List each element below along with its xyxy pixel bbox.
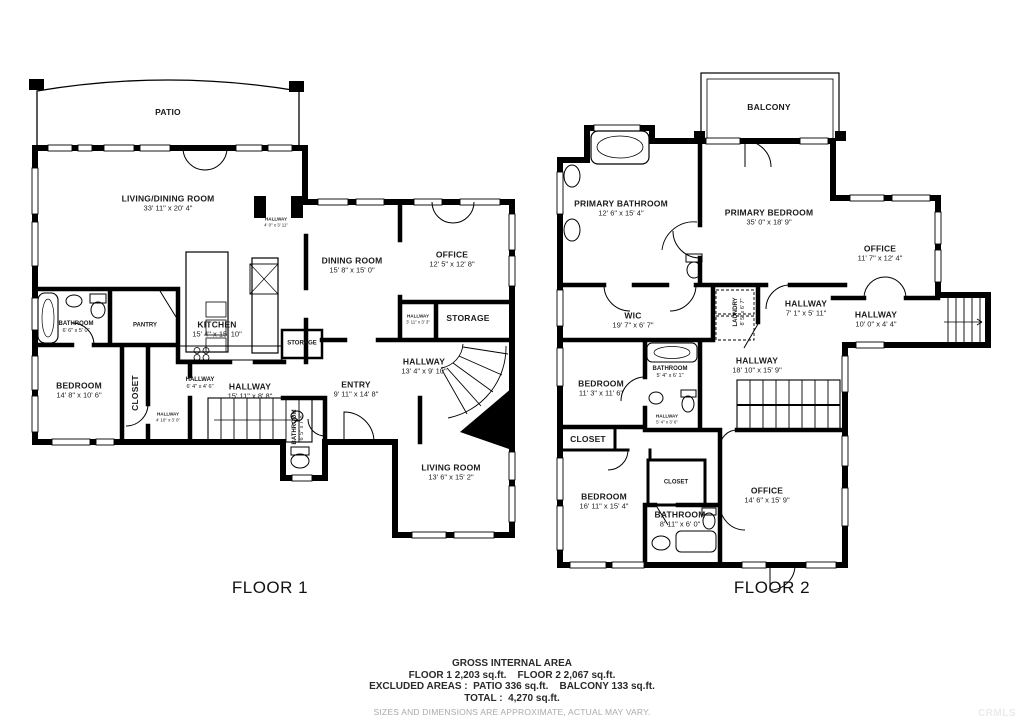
room-label-office: OFFICE14' 6" x 15' 9" [744, 485, 789, 504]
room-name: LIVING/DINING ROOM [122, 193, 215, 203]
room-label-bathroom: BATHROOM5' 4" x 6' 1" [653, 366, 688, 380]
excluded-areas-line: EXCLUDED AREAS : PATIO 336 sq.ft. BALCON… [0, 681, 1024, 693]
room-name: OFFICE [429, 249, 474, 259]
room-name: OFFICE [858, 243, 903, 253]
room-label-bedroom: BEDROOM11' 3" x 11' 6" [578, 378, 624, 397]
room-dims: 4' 10" x 3' 0" [156, 417, 180, 422]
room-labels-layer: PATIOLIVING/DINING ROOM33' 11" x 20' 4"H… [0, 0, 1024, 724]
room-name: BATHROOM [653, 366, 688, 373]
room-dims: 15' 8" x 15' 0" [322, 266, 383, 275]
room-dims: 14' 6" x 15' 9" [744, 496, 789, 505]
total-area-line: TOTAL : 4,270 sq.ft. [0, 693, 1024, 705]
room-name: BALCONY [747, 102, 790, 112]
room-dims: 6' 6" x 5' 0" [59, 328, 94, 335]
room-name: HALLWAY [785, 298, 827, 308]
room-dims: 33' 11" x 20' 4" [122, 204, 215, 213]
room-dims: 6' 4" x 4' 6" [186, 384, 215, 391]
room-dims: 9' 11" x 14' 8" [334, 390, 379, 399]
room-label-storage: STORAGE [446, 313, 489, 323]
room-label-hallway: HALLWAY4' 10" x 3' 0" [156, 412, 180, 423]
floor-areas-line: FLOOR 1 2,203 sq.ft. FLOOR 2 2,067 sq.ft… [0, 670, 1024, 682]
room-label-hallway: HALLWAY5' 4" x 3' 6" [656, 414, 678, 425]
room-dims: 10' 0" x 4' 4" [855, 320, 897, 329]
room-name: PRIMARY BEDROOM [725, 207, 813, 217]
room-name: WIC [612, 310, 653, 320]
room-dims: 5' 4" x 3' 6" [656, 419, 678, 424]
room-label-pantry: PANTRY [133, 322, 157, 329]
room-label-hallway: HALLWAY13' 4" x 9' 10" [401, 356, 446, 375]
room-dims: 13' 6" x 15' 2" [421, 473, 480, 482]
room-name: CLOSET [570, 434, 606, 444]
room-dims: 15' 4" x 15' 10" [192, 330, 241, 339]
room-dims: 18' 10" x 15' 9" [732, 366, 781, 375]
room-name: BEDROOM [56, 380, 102, 390]
room-name: PANTRY [133, 322, 157, 329]
room-label-patio: PATIO [155, 107, 181, 117]
room-label-wic: WIC19' 7" x 6' 7" [612, 310, 653, 329]
room-name: HALLWAY [406, 314, 430, 320]
room-label-hallway: HALLWAY6' 4" x 4' 6" [186, 377, 215, 391]
room-label-hallway: HALLWAY18' 10" x 15' 9" [732, 355, 781, 374]
room-dims: 13' 4" x 9' 10" [401, 367, 446, 376]
room-label-primary-bedroom: PRIMARY BEDROOM35' 0" x 18' 9" [725, 207, 813, 226]
room-label-bathroom: BATHROOM6' 6" x 5' 0" [59, 321, 94, 335]
room-label-living-dining-room: LIVING/DINING ROOM33' 11" x 20' 4" [122, 193, 215, 212]
room-name: HALLWAY [401, 356, 446, 366]
room-dims: 16' 11" x 15' 4" [580, 502, 629, 511]
room-label-closet: CLOSET [570, 434, 606, 444]
room-label-hallway: HALLWAY7' 1" x 5' 11" [785, 298, 827, 317]
room-dims: 7' 1" x 5' 11" [785, 309, 827, 318]
room-name: CLOSET [664, 479, 688, 486]
room-label-hallway: HALLWAY3' 11" x 3' 3" [406, 314, 430, 325]
room-label-office: OFFICE11' 7" x 12' 4" [858, 243, 903, 262]
room-name: HALLWAY [228, 381, 273, 391]
room-dims: 5' 4" x 6' 1" [653, 373, 688, 380]
room-label-closet: CLOSET [664, 479, 688, 486]
room-label-bedroom: BEDROOM16' 11" x 15' 4" [580, 491, 629, 510]
room-label-hallway: HALLWAY10' 0" x 4' 4" [855, 309, 897, 328]
room-dims: 6' 5" x 7' 8" [299, 410, 306, 445]
room-label-bathroom: BATHROOM6' 5" x 7' 8" [292, 410, 306, 445]
room-name: BATHROOM [292, 410, 299, 445]
floor-2-label: FLOOR 2 [734, 578, 810, 598]
room-dims: 14' 8" x 10' 6" [56, 391, 102, 400]
room-name: HALLWAY [732, 355, 781, 365]
room-name: PATIO [155, 107, 181, 117]
room-dims: 12' 6" x 15' 4" [574, 209, 668, 218]
room-name: LAUNDRY [733, 297, 740, 326]
room-dims: 11' 3" x 11' 6" [578, 389, 624, 398]
room-label-living-room: LIVING ROOM13' 6" x 15' 2" [421, 462, 480, 481]
room-name: OFFICE [744, 485, 789, 495]
floor-1-label: FLOOR 1 [232, 578, 308, 598]
disclaimer-text: SIZES AND DIMENSIONS ARE APPROXIMATE, AC… [0, 707, 1024, 717]
area-summary: GROSS INTERNAL AREA FLOOR 1 2,203 sq.ft.… [0, 658, 1024, 717]
room-label-closet: CLOSET [130, 375, 140, 411]
room-name: STORAGE [446, 313, 489, 323]
room-name: DINING ROOM [322, 255, 383, 265]
room-name: PRIMARY BATHROOM [574, 198, 668, 208]
room-label-office: OFFICE12' 5" x 12' 8" [429, 249, 474, 268]
room-label-primary-bathroom: PRIMARY BATHROOM12' 6" x 15' 4" [574, 198, 668, 217]
room-dims: 8' 11" x 6' 0" [654, 520, 705, 529]
room-dims: 11' 7" x 12' 4" [858, 254, 903, 263]
room-label-bathroom: BATHROOM8' 11" x 6' 0" [654, 509, 705, 528]
room-name: ENTRY [334, 379, 379, 389]
room-label-laundry: LAUNDRY8' 5" x 6' 7" [733, 297, 747, 326]
room-label-hallway: HALLWAY15' 11" x 8' 8" [228, 381, 273, 400]
room-name: BATHROOM [59, 321, 94, 328]
room-dims: 35' 0" x 18' 9" [725, 218, 813, 227]
room-name: HALLWAY [186, 377, 215, 384]
room-name: HALLWAY [156, 412, 180, 418]
room-name: BEDROOM [578, 378, 624, 388]
crmls-watermark: CRMLS [978, 708, 1016, 719]
room-dims: 12' 5" x 12' 8" [429, 260, 474, 269]
room-label-kitchen: KITCHEN15' 4" x 15' 10" [192, 319, 241, 338]
room-label-entry: ENTRY9' 11" x 14' 8" [334, 379, 379, 398]
room-name: HALLWAY [264, 217, 288, 223]
room-name: CLOSET [130, 375, 140, 411]
floorplan-canvas: PATIOLIVING/DINING ROOM33' 11" x 20' 4"H… [0, 0, 1024, 724]
room-dims: 3' 11" x 3' 3" [406, 319, 430, 324]
room-label-bedroom: BEDROOM14' 8" x 10' 6" [56, 380, 102, 399]
room-label-dining-room: DINING ROOM15' 8" x 15' 0" [322, 255, 383, 274]
room-dims: 19' 7" x 6' 7" [612, 321, 653, 330]
gross-internal-area-title: GROSS INTERNAL AREA [0, 658, 1024, 670]
room-name: BEDROOM [580, 491, 629, 501]
room-name: STORAGE [287, 340, 317, 347]
room-dims: 15' 11" x 8' 8" [228, 392, 273, 401]
room-name: LIVING ROOM [421, 462, 480, 472]
room-label-storage: STORAGE [287, 340, 317, 347]
room-name: BATHROOM [654, 509, 705, 519]
room-name: HALLWAY [656, 414, 678, 420]
room-name: KITCHEN [192, 319, 241, 329]
room-label-balcony: BALCONY [747, 102, 790, 112]
room-dims: 4' 0" x 3' 11" [264, 222, 288, 227]
room-dims: 8' 5" x 6' 7" [740, 297, 747, 326]
room-name: HALLWAY [855, 309, 897, 319]
room-label-hallway: HALLWAY4' 0" x 3' 11" [264, 217, 288, 228]
